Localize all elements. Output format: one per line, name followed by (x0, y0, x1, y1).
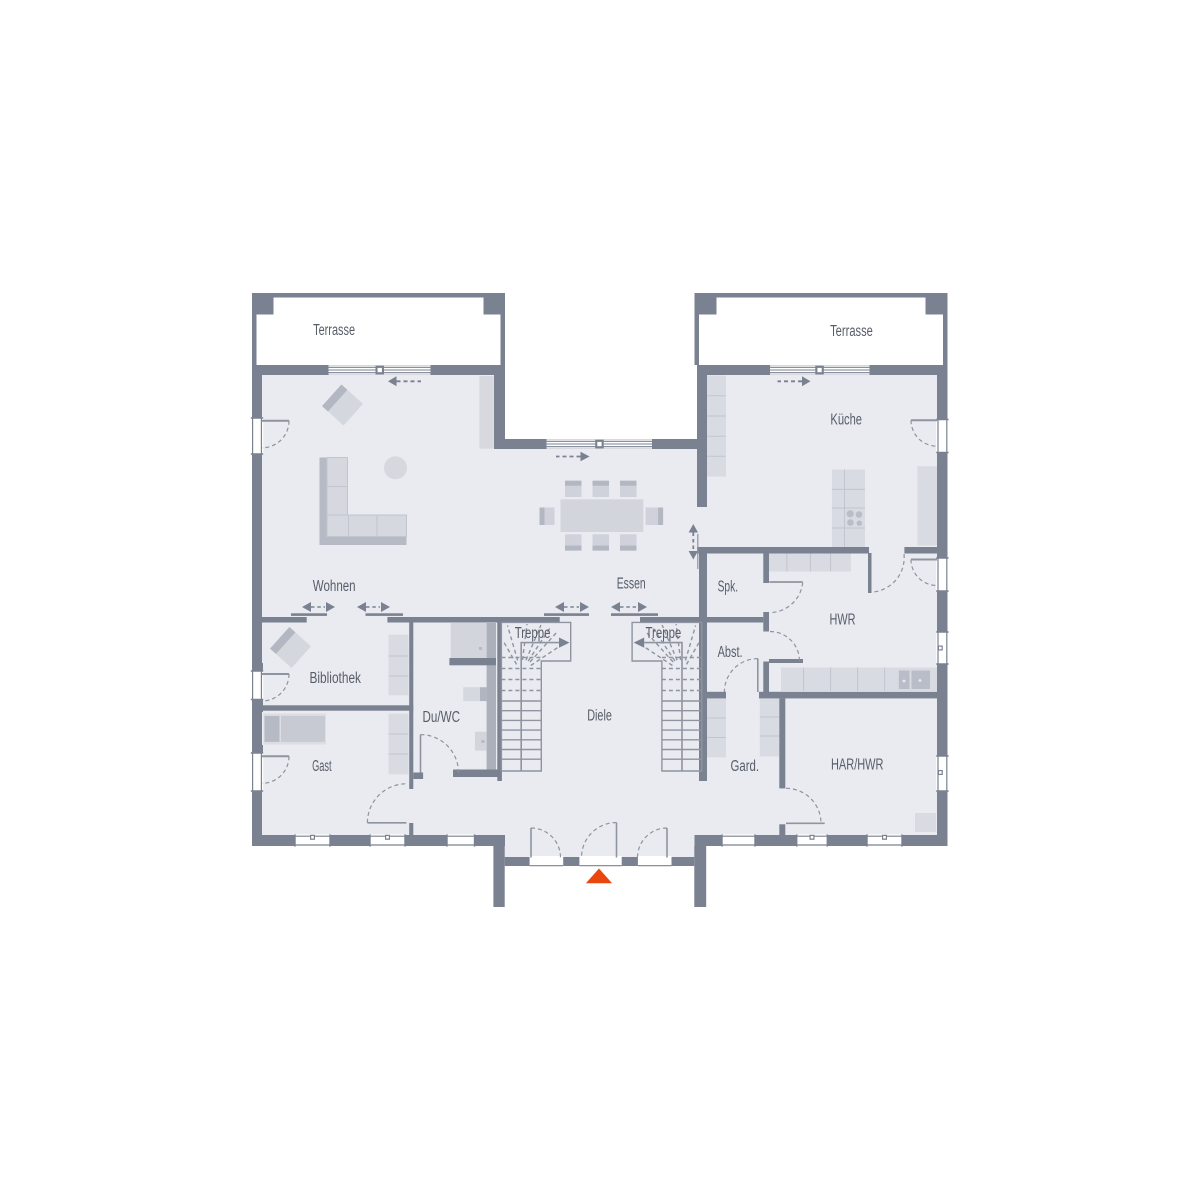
svg-text:Wohnen: Wohnen (313, 578, 356, 595)
svg-text:Treppe: Treppe (515, 625, 551, 642)
svg-text:HAR/HWR: HAR/HWR (831, 757, 884, 774)
svg-text:Gast: Gast (312, 758, 332, 775)
svg-text:Diele: Diele (587, 708, 612, 725)
svg-text:Treppe: Treppe (646, 625, 682, 642)
svg-text:Essen: Essen (617, 575, 646, 592)
svg-text:Spk.: Spk. (718, 579, 739, 596)
svg-text:Du/WC: Du/WC (423, 709, 461, 726)
svg-text:Terrasse: Terrasse (313, 322, 355, 339)
svg-text:Bibliothek: Bibliothek (310, 670, 362, 687)
svg-text:HWR: HWR (830, 611, 856, 628)
svg-text:Abst.: Abst. (718, 644, 743, 661)
svg-text:Gard.: Gard. (731, 758, 760, 775)
svg-text:Terrasse: Terrasse (830, 323, 873, 340)
svg-text:Küche: Küche (830, 412, 862, 429)
